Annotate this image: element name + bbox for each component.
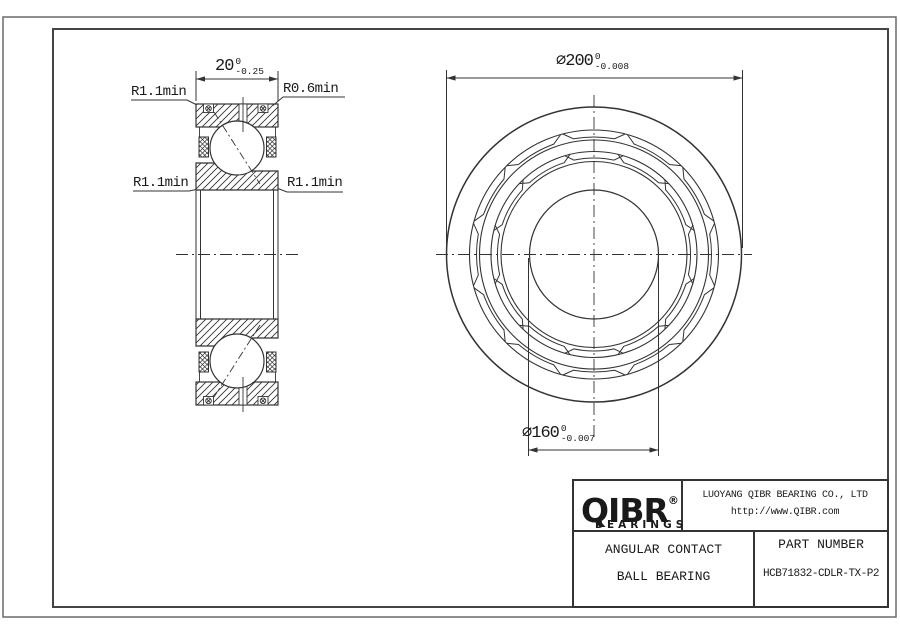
- cage-block: [199, 137, 209, 157]
- front-view-centerlines: [436, 95, 752, 438]
- drawing-border: [3, 17, 896, 617]
- od-dimension-lines: [447, 70, 743, 248]
- fillet-label-mid-left: R1.1min: [133, 175, 188, 191]
- bore-value: 160: [531, 424, 559, 443]
- engineering-drawing-page: R1.1min R0.6min R1.1min R1.1min 20 0 -0.…: [0, 0, 900, 636]
- bore-dimension: ⌀ 160 0 -0.007: [522, 424, 595, 444]
- website-url: http://www.QIBR.com: [684, 507, 886, 518]
- part-number-label: PART NUMBER: [756, 537, 886, 552]
- fillet-label-top-right: R0.6min: [283, 81, 338, 97]
- cage-block: [199, 352, 209, 372]
- front-view: [436, 70, 752, 456]
- width-dimension: 20 0 -0.25: [215, 57, 264, 77]
- ball-bottom: [210, 334, 264, 388]
- width-value: 20: [215, 57, 233, 76]
- left-section-view: [131, 71, 345, 412]
- fillet-label-mid-right: R1.1min: [287, 175, 342, 191]
- company-name: LUOYANG QIBR BEARING CO., LTD: [684, 490, 886, 501]
- cage-block: [267, 352, 277, 372]
- product-type-line1: ANGULAR CONTACT: [575, 542, 752, 557]
- ball-top: [210, 121, 264, 175]
- bore-lower-tolerance: -0.007: [561, 434, 595, 444]
- registered-trademark-icon: ®: [668, 494, 679, 507]
- diameter-symbol: ⌀: [556, 52, 565, 71]
- cage-block: [267, 137, 277, 157]
- part-number-value: HCB71832-CDLR-TX-P2: [754, 568, 888, 580]
- brand-subtitle: BEARINGS: [595, 519, 687, 531]
- od-value: 200: [565, 52, 593, 71]
- diameter-symbol: ⌀: [522, 424, 531, 443]
- od-lower-tolerance: -0.008: [595, 62, 629, 72]
- width-lower-tolerance: -0.25: [235, 67, 264, 77]
- product-type-line2: BALL BEARING: [575, 569, 752, 584]
- fillet-label-top-left: R1.1min: [131, 84, 186, 100]
- od-dimension: ⌀ 200 0 -0.008: [556, 52, 629, 72]
